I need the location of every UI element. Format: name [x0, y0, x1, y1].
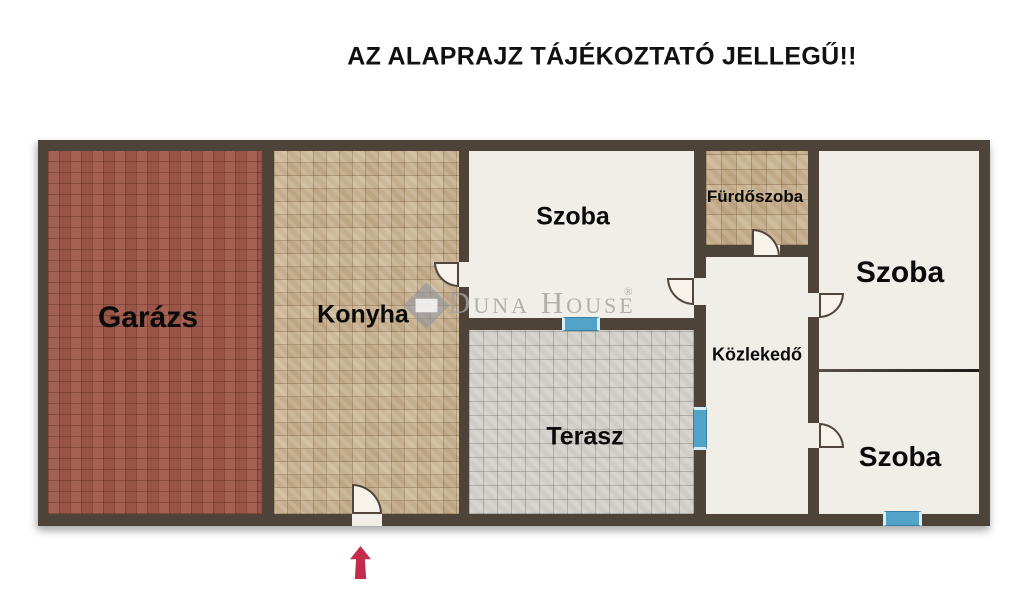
window-marker-szoba-terasz [562, 317, 600, 331]
wall-kozlekedo-szoba-right-b [808, 317, 819, 423]
room-szoba-top-floor [469, 151, 694, 318]
disclaimer-title: AZ ALAPRAJZ TÁJÉKOZTATÓ JELLEGŰ!! [347, 43, 856, 72]
room-label-kozlekedo: Közlekedő [712, 345, 802, 366]
room-label-szoba-right-bottom: Szoba [859, 441, 941, 473]
wall-outer-right [979, 140, 990, 526]
room-label-konyha: Konyha [317, 301, 409, 330]
wall-szoba-kozlekedo-upper [694, 140, 706, 278]
wall-kitchen-szoba-upper [459, 140, 469, 262]
wall-furdoszoba-bottom-left [694, 245, 752, 257]
wall-kozlekedo-szoba-right-a [808, 140, 819, 293]
wall-outer-top [38, 140, 990, 151]
wall-furdoszoba-bottom-right [780, 245, 819, 257]
wall-garage-kitchen [262, 140, 274, 526]
room-label-furdoszoba: Fürdőszoba [707, 187, 803, 207]
room-kozlekedo-floor [706, 257, 808, 514]
wall-outer-left [38, 140, 48, 526]
wall-outer-bottom-left [38, 514, 352, 526]
wall-szoba-divider-thin [819, 369, 979, 372]
floor-plan: Garázs Konyha Szoba Fürdőszoba Szoba Köz… [38, 140, 990, 526]
window-marker-terasz-kozlekedo [693, 407, 707, 450]
entrance-arrow-icon [350, 546, 371, 579]
window-marker-szoba-bottom [883, 511, 922, 526]
room-label-szoba-top: Szoba [536, 203, 610, 232]
room-konyha-floor [274, 151, 459, 514]
wall-kozlekedo-szoba-right-c [808, 448, 819, 526]
room-label-terasz: Terasz [546, 423, 623, 452]
room-label-garazs: Garázs [98, 301, 198, 335]
room-label-szoba-right-top: Szoba [856, 256, 944, 290]
